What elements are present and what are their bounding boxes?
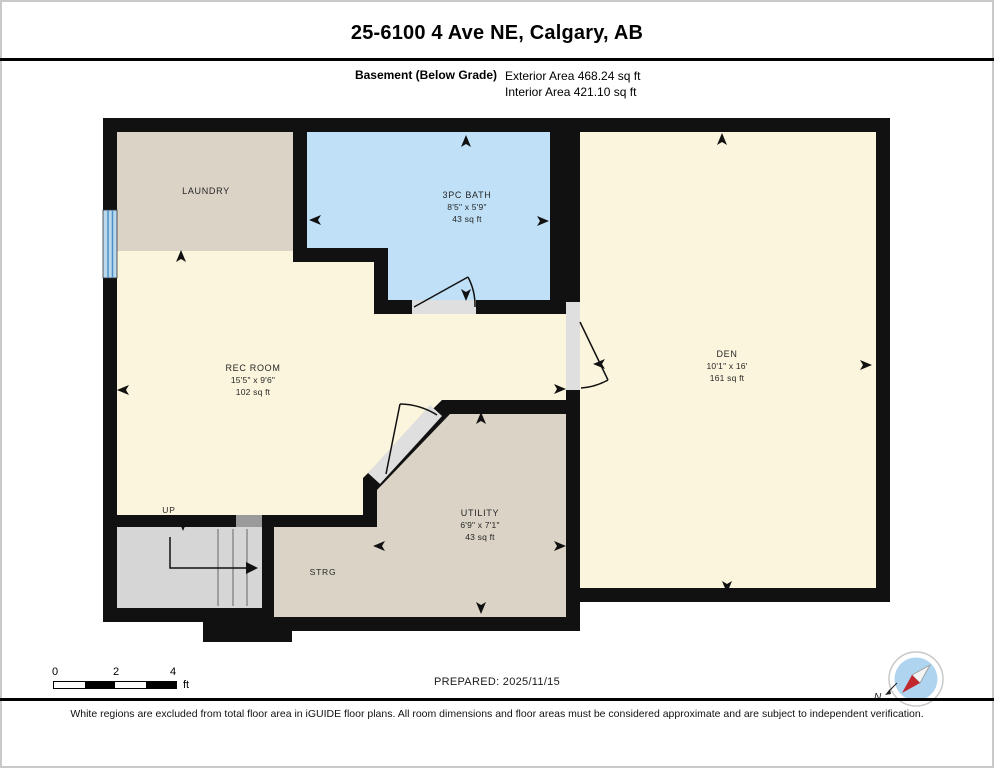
- window-icon: [103, 210, 117, 278]
- floorplan-drawing: [0, 0, 994, 768]
- room-dims: 10'1" x 16': [706, 360, 747, 372]
- room-dims: 15'5" x 9'6": [225, 374, 280, 386]
- room-dims: 8'5" x 5'9": [443, 201, 492, 213]
- room-label-den: DEN 10'1" x 16' 161 sq ft: [706, 348, 747, 384]
- room-label-bath: 3PC BATH 8'5" x 5'9" 43 sq ft: [443, 189, 492, 225]
- room-dims: 6'9" x 7'1": [460, 519, 499, 531]
- room-label-laundry: LAUNDRY: [182, 185, 230, 197]
- room-name: REC ROOM: [225, 362, 280, 374]
- room-name: 3PC BATH: [443, 189, 492, 201]
- disclaimer-text: White regions are excluded from total fl…: [0, 708, 994, 720]
- room-area: 43 sq ft: [460, 531, 499, 543]
- room-name: UTILITY: [460, 507, 499, 519]
- room-label-utility: UTILITY 6'9" x 7'1" 43 sq ft: [460, 507, 499, 543]
- room-label-storage: STRG: [310, 567, 337, 577]
- room-label-rec: REC ROOM 15'5" x 9'6" 102 sq ft: [225, 362, 280, 398]
- room-name: DEN: [706, 348, 747, 360]
- den-door-opening: [566, 302, 580, 390]
- stairs-up-label: UP: [162, 505, 175, 515]
- floorplan-page: 25-6100 4 Ave NE, Calgary, AB Basement (…: [0, 0, 994, 768]
- room-area: 161 sq ft: [706, 372, 747, 384]
- prepared-date: PREPARED: 2025/11/15: [0, 676, 994, 688]
- room-name: LAUNDRY: [182, 185, 230, 197]
- footer-divider: [0, 698, 994, 701]
- room-area: 43 sq ft: [443, 213, 492, 225]
- room-area: 102 sq ft: [225, 386, 280, 398]
